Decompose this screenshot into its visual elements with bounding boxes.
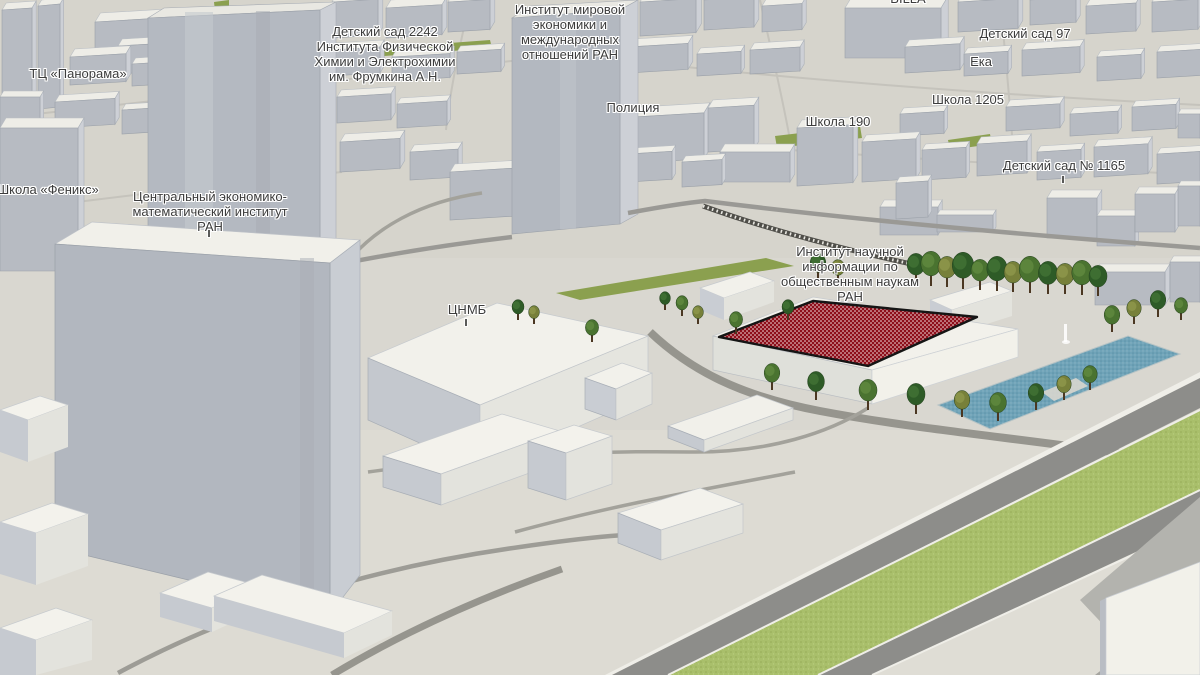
poi-label-detsky-sad-2242[interactable]: Детский сад 2242 Института Физической Хи… bbox=[315, 24, 456, 84]
poi-label-tsemi[interactable]: Центральный экономико- математический ин… bbox=[132, 189, 287, 234]
poi-label-shkola-feniks[interactable]: Школа «Феникс» bbox=[0, 182, 99, 197]
poi-label-tsnmb[interactable]: ЦНМБ bbox=[448, 302, 486, 317]
poi-label-billa[interactable]: BILLA bbox=[890, 0, 925, 6]
poi-label-shkola-1205[interactable]: Школа 1205 bbox=[932, 92, 1004, 107]
poi-label-detsky-sad-1165[interactable]: Детский сад № 1165 bbox=[1003, 158, 1125, 173]
poi-label-eka[interactable]: Ека bbox=[970, 54, 992, 69]
poi-label-inion[interactable]: Институт научной информации по обществен… bbox=[781, 244, 919, 304]
map-3d-canvas[interactable] bbox=[0, 0, 1200, 675]
building-tsemi bbox=[55, 222, 360, 614]
poi-label-detsky-sad-97[interactable]: Детский сад 97 bbox=[979, 26, 1070, 41]
poi-label-imemo[interactable]: Институт мировой экономики и международн… bbox=[515, 2, 625, 62]
map-3d-viewport[interactable]: ТЦ «Панорама» Детский сад 2242 Института… bbox=[0, 0, 1200, 675]
poi-label-panorama[interactable]: ТЦ «Панорама» bbox=[29, 66, 126, 81]
poi-label-shkola-190[interactable]: Школа 190 bbox=[806, 114, 871, 129]
poi-label-politsiya[interactable]: Полиция bbox=[607, 100, 660, 115]
